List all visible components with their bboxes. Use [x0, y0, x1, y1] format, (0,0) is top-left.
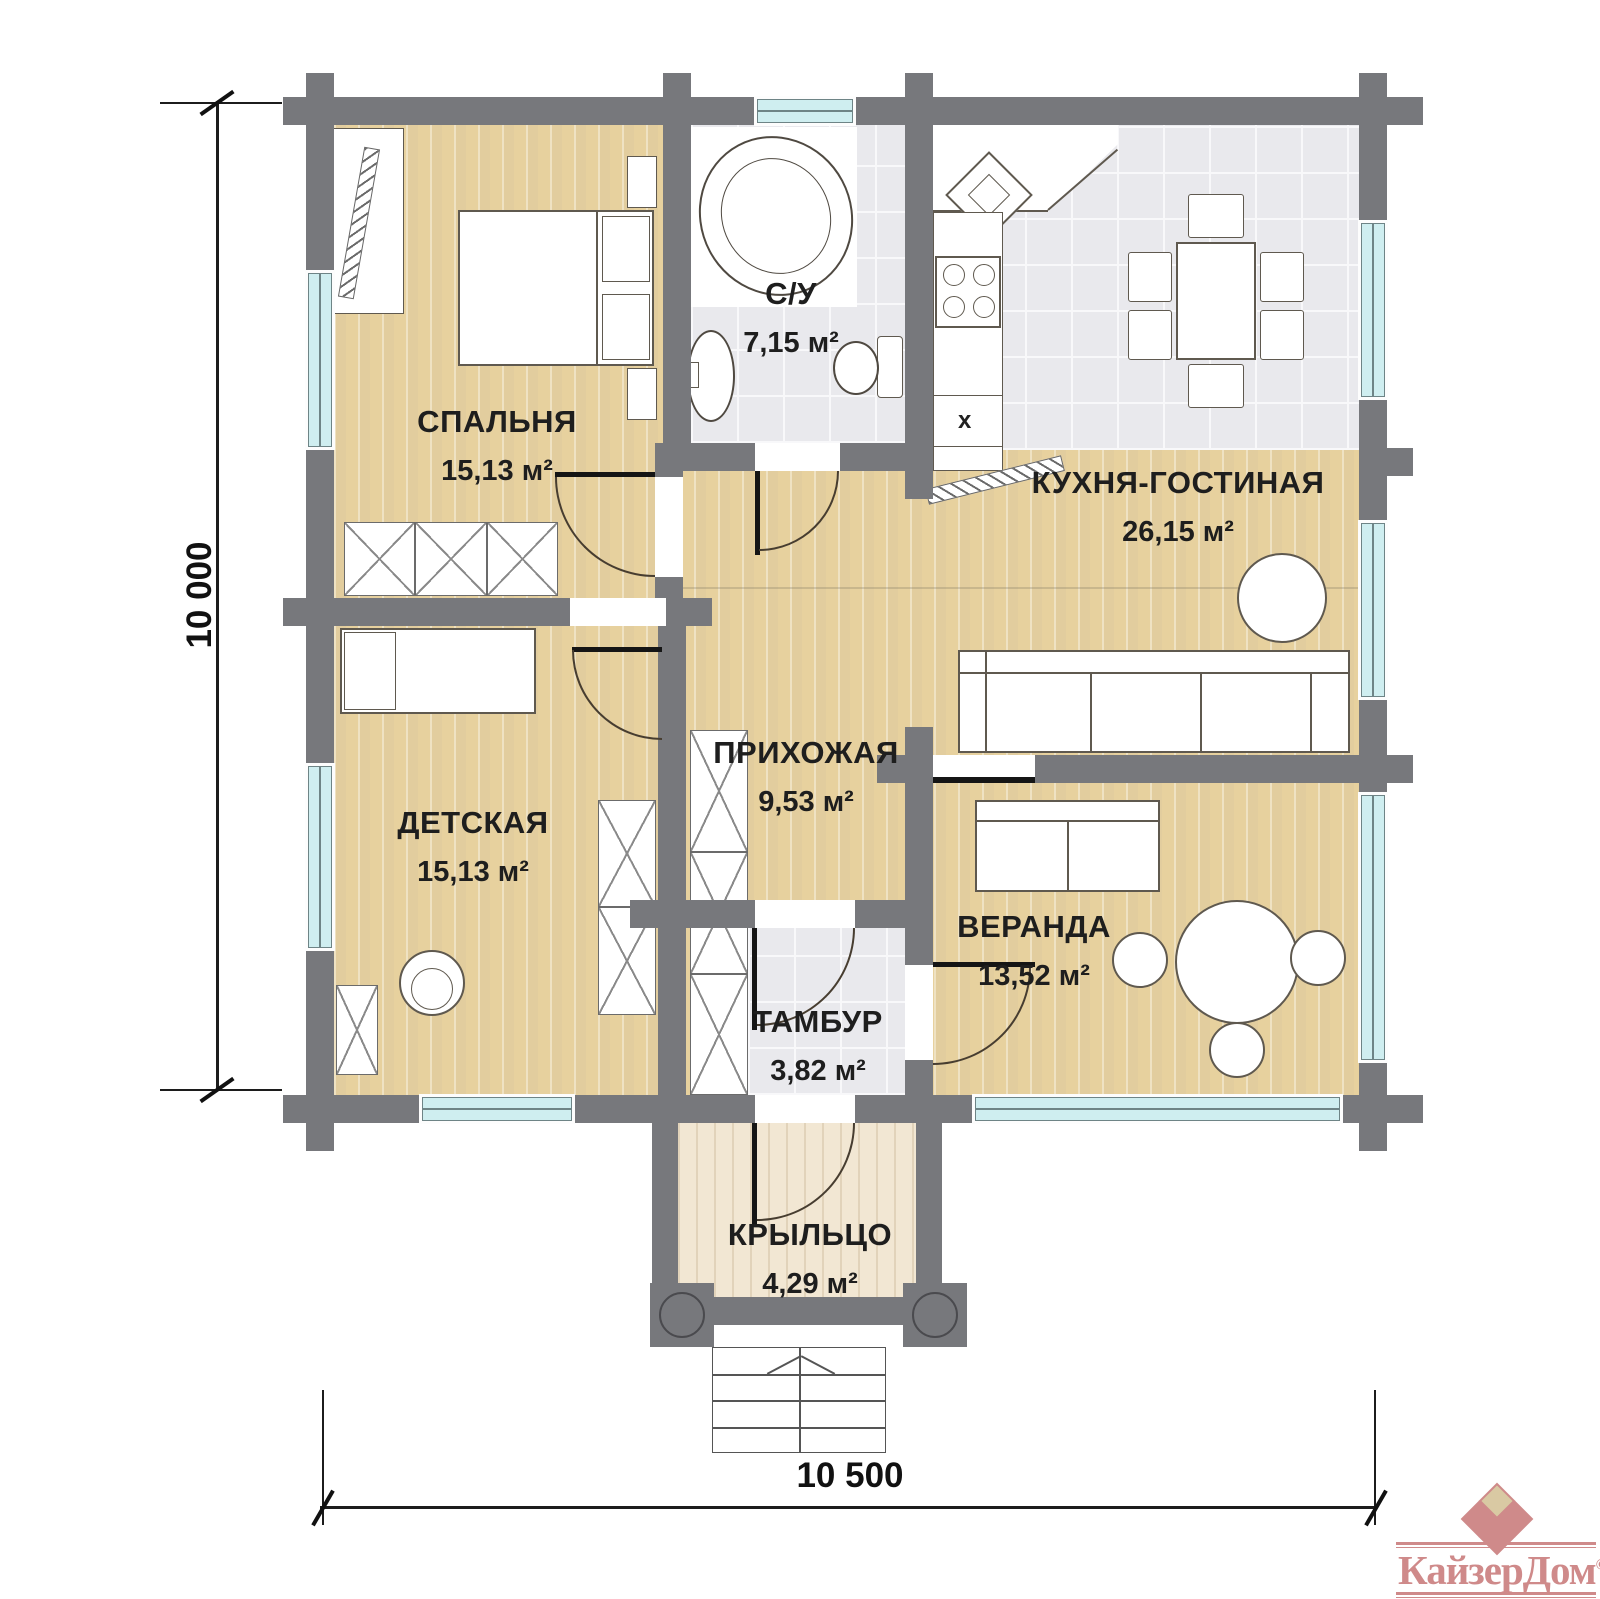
logo-rule-bottom-thin: [1396, 1597, 1596, 1598]
room-label-hallway: ПРИХОЖАЯ 9,53 м²: [713, 735, 899, 819]
dim-line-bottom: [320, 1506, 1377, 1509]
room-label-bedroom: СПАЛЬНЯ 15,13 м²: [417, 404, 577, 488]
toilet-bowl: [833, 341, 879, 395]
room-area: 4,29 м²: [728, 1268, 892, 1301]
log-stub: [1387, 755, 1413, 783]
room-name: ВЕРАНДА: [957, 909, 1111, 945]
children-bottom-window: [422, 1097, 572, 1121]
logo-rule-top: [1396, 1542, 1596, 1545]
bedroom-wardrobe-cell: [415, 522, 487, 596]
door-opening: [905, 965, 933, 1060]
veranda-round-table: [1175, 900, 1299, 1024]
veranda-bottom-window: [975, 1097, 1340, 1121]
room-area: 3,82 м²: [753, 1055, 883, 1088]
wall-children-hall: [658, 626, 686, 1095]
dining-chair: [1260, 252, 1304, 302]
room-label-tambour: ТАМБУР 3,82 м²: [753, 1004, 883, 1088]
kids-wardrobe-cell: [598, 800, 656, 907]
children-window: [308, 766, 332, 948]
room-label-bathroom: С/У 7,15 м²: [743, 276, 839, 360]
room-area: 15,13 м²: [417, 455, 577, 488]
logo-copyright: ©: [1596, 1556, 1600, 1573]
dining-chair: [1260, 310, 1304, 360]
stairs-up-arrow: [767, 1355, 801, 1375]
sofa-divider: [1310, 674, 1312, 751]
porch-column-icon: [659, 1292, 705, 1338]
dining-table: [1176, 242, 1256, 360]
dining-chair: [1128, 310, 1172, 360]
room-label-kitchen-living: КУХНЯ-ГОСТИНАЯ 26,15 м²: [1032, 465, 1325, 549]
room-label-veranda: ВЕРАНДА 13,52 м²: [957, 909, 1111, 993]
veranda-sofa-divider: [1067, 822, 1069, 890]
veranda-chair: [1112, 932, 1168, 988]
stove-burner: [943, 296, 965, 318]
door-opening: [755, 443, 840, 471]
logo: КайзерДом©: [1396, 1482, 1596, 1599]
log-stub: [686, 598, 712, 626]
logo-brand-text: КайзерДом: [1398, 1547, 1596, 1593]
veranda-right-window: [1361, 795, 1385, 1060]
floor-plan: x: [0, 0, 1600, 1599]
stairs-up-arrow: [801, 1355, 835, 1375]
stove-burner: [973, 296, 995, 318]
nightstand: [627, 368, 657, 420]
bedroom-window: [308, 273, 332, 447]
door-opening: [755, 900, 855, 928]
sofa-divider: [1200, 674, 1202, 751]
wall-bedroom-bathroom: [663, 125, 691, 443]
veranda-chair: [1209, 1022, 1265, 1078]
porch-rail-left: [652, 1123, 678, 1303]
kids-chair-seat: [411, 968, 453, 1010]
dim-height-label: 10 000: [180, 515, 220, 675]
room-area: 7,15 м²: [743, 327, 839, 360]
pillow: [344, 632, 396, 710]
sofa-back-line: [960, 672, 1348, 674]
stairs-center-line: [799, 1348, 801, 1452]
dim-width-label: 10 500: [770, 1456, 930, 1496]
toilet-tank: [877, 336, 903, 398]
room-area: 26,15 м²: [1032, 516, 1325, 549]
room-area: 13,52 м²: [957, 960, 1111, 993]
porch-column-icon: [912, 1292, 958, 1338]
bedroom-wardrobe-cell: [344, 522, 415, 596]
room-name: ТАМБУР: [753, 1004, 883, 1040]
log-stub: [1387, 448, 1413, 476]
living-sofa: [958, 650, 1350, 753]
log-stub: [905, 73, 933, 97]
room-name: ДЕТСКАЯ: [397, 805, 548, 841]
room-area: 9,53 м²: [713, 786, 899, 819]
dining-chair: [1128, 252, 1172, 302]
logo-brand: КайзерДом©: [1398, 1546, 1600, 1594]
veranda-chair: [1290, 930, 1346, 986]
stove-burner: [943, 264, 965, 286]
porch-rail-right: [916, 1123, 942, 1303]
bedroom-wardrobe-cell: [487, 522, 558, 596]
dining-chair: [1188, 364, 1244, 408]
living-window: [1361, 523, 1385, 697]
door-leaf: [933, 777, 1035, 783]
door-opening: [570, 598, 666, 626]
sofa-divider: [1090, 674, 1092, 751]
hall-wardrobe-cell: [690, 974, 748, 1095]
room-name: СПАЛЬНЯ: [417, 404, 577, 440]
room-area: 15,13 м²: [397, 856, 548, 889]
room-name: С/У: [743, 276, 839, 312]
sofa-divider: [985, 652, 987, 751]
door-opening: [755, 1095, 855, 1123]
log-stub: [283, 598, 306, 626]
log-stub: [905, 727, 933, 755]
living-side-table: [1237, 553, 1327, 643]
log-stub: [663, 73, 691, 97]
room-label-children: ДЕТСКАЯ 15,13 м²: [397, 805, 548, 889]
room-name: ПРИХОЖАЯ: [713, 735, 899, 771]
stairs: [712, 1347, 886, 1453]
kitchen-window: [1361, 223, 1385, 397]
log-stub: [630, 900, 658, 928]
dining-chair: [1188, 194, 1244, 238]
room-name: КУХНЯ-ГОСТИНАЯ: [1032, 465, 1325, 501]
door-opening: [655, 477, 683, 577]
bed-headboard-line: [596, 212, 598, 364]
room-label-porch: КРЫЛЬЦО 4,29 м²: [728, 1217, 892, 1301]
room-name: КРЫЛЬЦО: [728, 1217, 892, 1253]
wall-top: [283, 97, 1423, 125]
pillow: [602, 294, 650, 360]
bathroom-window: [757, 99, 853, 123]
stove-burner: [973, 264, 995, 286]
logo-rule-bottom: [1396, 1592, 1596, 1595]
kids-cabinet: [336, 985, 378, 1075]
kitchen-cabinet-mark: x: [958, 407, 971, 435]
nightstand: [627, 156, 657, 208]
pillow: [602, 216, 650, 282]
